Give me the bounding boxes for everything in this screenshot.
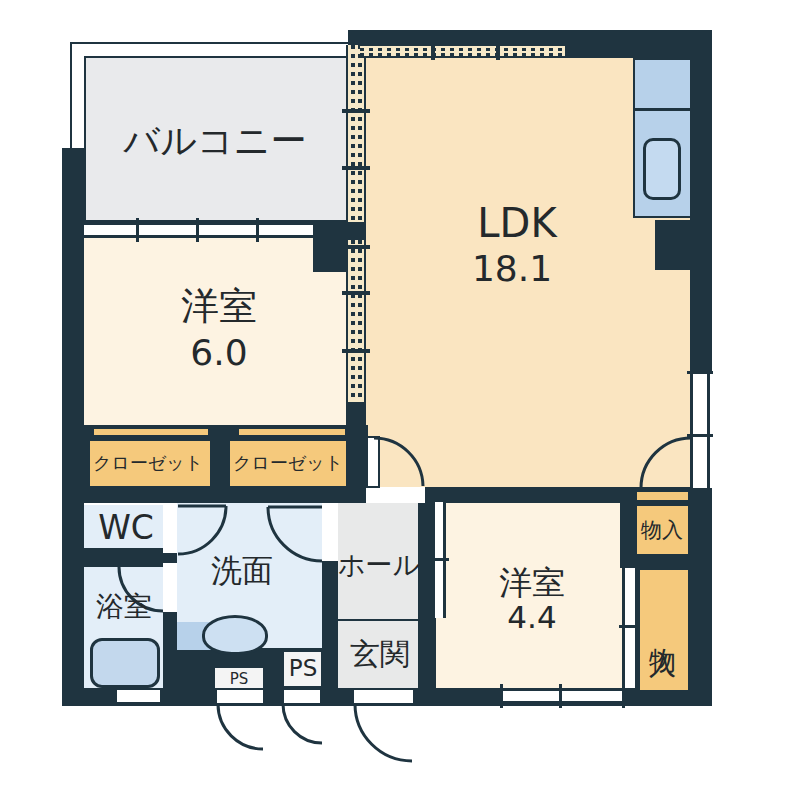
window-tick — [196, 218, 199, 242]
wall-right-lower — [690, 488, 712, 706]
wall-right-upper — [690, 30, 712, 373]
hatch-tick — [342, 109, 370, 113]
ldk-right-door-opening — [690, 437, 710, 488]
hall-label: ホール — [338, 551, 420, 578]
bedroom-storage-sliding-door — [622, 568, 638, 688]
floor-plan: バルコニー LDK 18.1 洋室 6.0 洋室 4.4 クローゼット クローゼ… — [0, 0, 800, 800]
ldk-label: LDK — [477, 203, 556, 243]
ldk-right-window — [690, 373, 710, 437]
hatch-tick — [342, 349, 370, 353]
ps-door-leaf — [282, 688, 322, 705]
storage-lower — [638, 568, 690, 692]
entrance-label: 玄関 — [350, 639, 410, 669]
ps-door-arc — [218, 704, 263, 749]
closet-left-door — [92, 427, 210, 437]
sliding-door-tick — [429, 558, 449, 561]
hatch-tick — [431, 40, 435, 60]
hatch-tick — [342, 245, 370, 249]
ldk-top-window — [360, 44, 565, 58]
bedroom-west-area: 6.0 — [190, 335, 247, 371]
balcony-label: バルコニー — [123, 123, 306, 159]
ldk-hall-door-leaf — [366, 436, 380, 488]
bathroom-vent — [117, 690, 160, 702]
ldk-hall-door-opening — [366, 487, 425, 503]
wall-hatch-column-lower — [346, 402, 366, 503]
storage-upper-door — [635, 490, 690, 502]
storage-lower-label: 物入 — [650, 626, 677, 630]
bedroom-west-ldk-window — [346, 240, 366, 402]
closet-right-label: クローゼット — [233, 454, 343, 472]
washbasin-bowl — [202, 615, 268, 655]
bathroom-door-opening — [163, 563, 177, 612]
kitchen-counter-divider — [633, 108, 692, 111]
ldk-area: 18.1 — [472, 251, 552, 287]
ps-door-leaf — [215, 688, 265, 705]
window-tick — [559, 684, 562, 708]
window-tick — [500, 684, 503, 708]
ps-door-arc — [283, 704, 322, 743]
window-tick — [136, 218, 139, 242]
window-tick — [687, 371, 713, 374]
bedroom-south-window — [502, 688, 625, 704]
toilet-label: WC — [98, 511, 154, 544]
storage-upper-label: 物入 — [641, 520, 683, 541]
bathroom-label: 浴室 — [96, 593, 152, 621]
entrance-door-leaf — [352, 688, 415, 705]
closet-left-label: クローゼット — [93, 454, 203, 472]
bathtub — [90, 638, 160, 688]
kitchen-sink — [643, 138, 681, 200]
bedroom-west-label: 洋室 — [181, 287, 257, 325]
closet-right-door — [237, 427, 347, 437]
hatch-tick — [342, 291, 370, 295]
bedroom-south-label: 洋室 — [499, 566, 565, 599]
bedroom-south-area: 4.4 — [507, 602, 556, 633]
toilet-door-opening — [163, 503, 177, 553]
pipe-space-small-label: PS — [230, 672, 249, 687]
washroom-label: 洗面 — [211, 555, 273, 586]
hall-entrance-divider — [338, 619, 418, 621]
entrance-door-arc — [355, 704, 412, 761]
hatch-tick — [496, 40, 500, 60]
pipe-space-large-label: PS — [289, 657, 317, 680]
hatch-tick — [342, 166, 370, 170]
wall-kitchen-block — [655, 220, 692, 270]
window-tick — [256, 218, 259, 242]
balcony-ldk-window — [346, 45, 366, 222]
washroom-door-opening — [322, 503, 338, 561]
